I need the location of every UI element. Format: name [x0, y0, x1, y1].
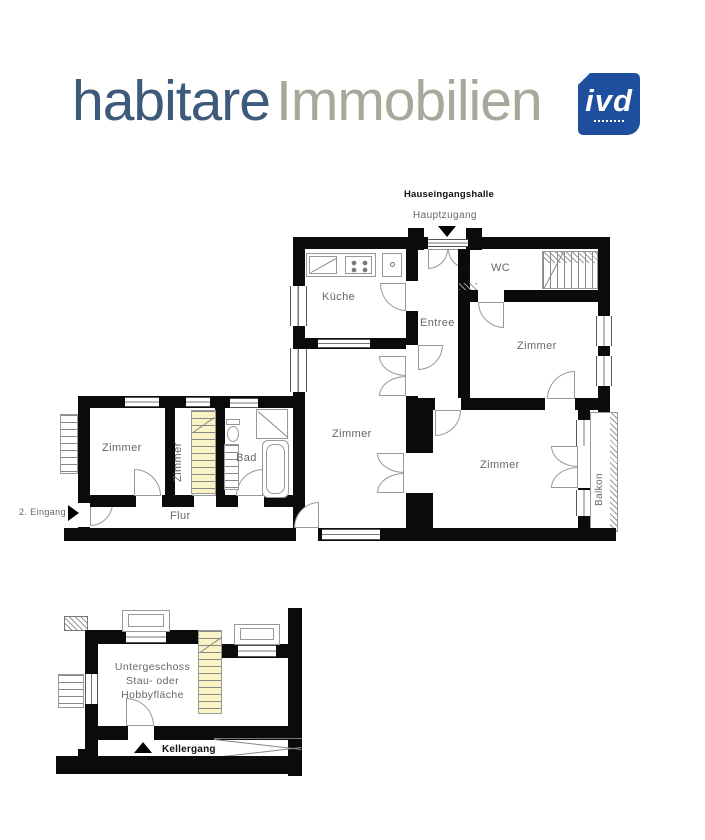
radiator-icon	[224, 444, 239, 490]
ivd-badge: ivd	[578, 73, 640, 135]
wall	[466, 228, 482, 250]
room-label-hall: Flur	[170, 510, 191, 522]
entrance-arrow-icon	[438, 226, 456, 237]
exterior-stair-icon	[60, 414, 78, 474]
window	[290, 286, 307, 326]
exterior-stair-icon	[58, 674, 84, 708]
wall	[458, 302, 470, 398]
door-arc	[126, 698, 154, 726]
entrance-hall-label: Hauseingangshalle	[404, 189, 494, 200]
glass-door	[318, 339, 370, 348]
toilet-bowl-icon	[227, 426, 239, 442]
room-label-entree: Entree	[420, 317, 455, 329]
appliance-dot	[390, 262, 395, 267]
entrance-door-threshold	[428, 239, 468, 247]
toilet-icon: [9]	[459, 264, 471, 274]
balcony-edge-hatch	[610, 413, 617, 531]
door-arc	[418, 345, 443, 370]
cellar-arrow-icon	[134, 742, 152, 753]
door-opening	[578, 446, 590, 488]
window	[125, 397, 159, 407]
main-entrance-label: Hauptzugang	[413, 210, 477, 221]
door-opening	[403, 453, 433, 493]
room-label-bath: Bad	[236, 452, 257, 464]
room-label-left: Zimmer	[102, 442, 142, 454]
brand-primary: habitare	[72, 68, 270, 134]
cellar-corridor-label: Kellergang	[162, 744, 216, 755]
door-opening	[435, 398, 461, 410]
room-label-balcony: Balkon	[594, 444, 605, 506]
window	[238, 645, 276, 657]
door-opening	[545, 398, 575, 410]
floorplan-page: habitare Immobilien ivd Hauseingangshall…	[0, 0, 705, 840]
door-arc	[428, 249, 448, 269]
wall	[293, 237, 418, 249]
wall	[408, 228, 424, 250]
cellar-ramp-icon	[214, 738, 302, 758]
brand-secondary: Immobilien	[276, 68, 542, 134]
wall	[56, 756, 302, 774]
light-well-inner	[128, 614, 164, 627]
door-arc	[379, 356, 406, 376]
door-arc	[435, 410, 461, 436]
door-arc	[379, 376, 406, 396]
window	[126, 631, 166, 643]
bathtub-icon	[262, 440, 289, 498]
room-label-bottom-right: Zimmer	[480, 459, 520, 471]
door-opening	[406, 356, 418, 396]
door-opening	[296, 528, 318, 541]
staircase-highlighted	[191, 410, 216, 494]
door-arc	[377, 453, 404, 473]
room-label-wc: WC	[491, 262, 510, 274]
door-arc	[380, 283, 406, 311]
door-opening	[194, 495, 216, 507]
basement-room-label-line2: Stau- oder	[95, 674, 210, 688]
basement-room-label-line1: Untergeschoss	[95, 660, 210, 674]
window	[596, 316, 612, 346]
stove-icon	[345, 256, 372, 274]
door-opening	[78, 503, 90, 527]
staircase-icon	[542, 251, 598, 289]
brand-logo: habitare Immobilien	[72, 68, 542, 142]
door-arc	[547, 371, 575, 399]
wall	[468, 237, 610, 249]
room-label-kitchen: Küche	[322, 291, 355, 303]
second-entrance-label: 2. Eingang	[10, 507, 66, 517]
door-opening	[136, 495, 162, 507]
door-arc	[551, 446, 578, 467]
window	[230, 398, 258, 408]
light-well-inner	[240, 628, 274, 640]
door-arc	[134, 469, 161, 496]
window	[290, 348, 307, 392]
basement-room-label-line3: Hobbyfläche	[95, 688, 210, 702]
door-opening	[478, 290, 504, 302]
room-label-left-small: Zimmer	[172, 420, 184, 482]
room-label-center: Zimmer	[332, 428, 372, 440]
ivd-badge-text: ivd	[585, 86, 633, 116]
hatch-block	[64, 616, 88, 631]
door-opening	[128, 726, 154, 740]
door-arc	[377, 473, 404, 493]
door-arc	[551, 467, 578, 488]
door-arc	[478, 302, 504, 328]
window	[322, 529, 380, 540]
door-opening	[406, 281, 418, 311]
stair-hatch	[543, 252, 597, 263]
wc-hatch-decoration	[459, 283, 477, 290]
kitchen-appliance-icon	[382, 253, 402, 277]
toilet-tank-icon	[226, 419, 240, 425]
door-arc	[236, 469, 263, 496]
door-opening	[238, 495, 264, 507]
bathtub-inner	[266, 444, 285, 494]
window	[596, 356, 612, 386]
basement-room-label: Untergeschoss Stau- oder Hobbyfläche	[95, 660, 210, 702]
badge-fineprint-decoration	[594, 120, 624, 122]
window	[186, 397, 210, 407]
room-label-top-right: Zimmer	[517, 340, 557, 352]
second-entrance-arrow-icon	[68, 505, 79, 521]
